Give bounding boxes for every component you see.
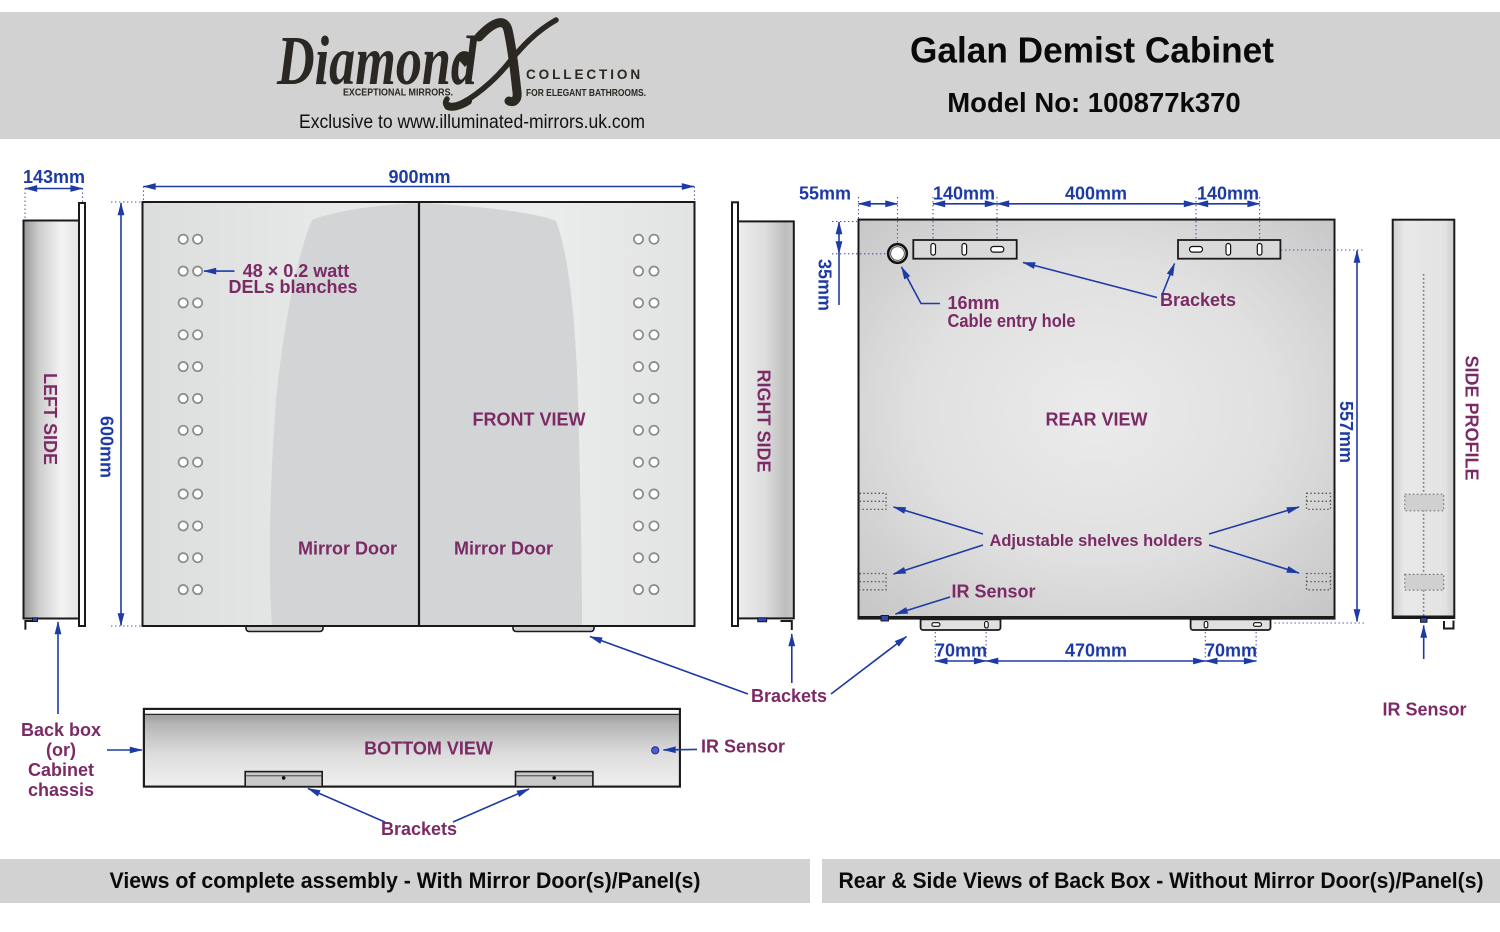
svg-text:FOR ELEGANT BATHROOMS.: FOR ELEGANT BATHROOMS.	[526, 87, 646, 99]
svg-text:Mirror Door: Mirror Door	[298, 539, 397, 559]
svg-text:EXCEPTIONAL MIRRORS.: EXCEPTIONAL MIRRORS.	[343, 87, 453, 99]
svg-text:Back box: Back box	[21, 720, 101, 740]
svg-text:LEFT SIDE: LEFT SIDE	[40, 373, 60, 465]
svg-text:900mm: 900mm	[388, 167, 450, 187]
svg-text:Brackets: Brackets	[1160, 290, 1236, 310]
svg-text:55mm: 55mm	[799, 184, 851, 204]
svg-text:Adjustable shelves holders: Adjustable shelves holders	[990, 531, 1203, 550]
svg-text:COLLECTION: COLLECTION	[526, 66, 643, 82]
svg-text:35mm: 35mm	[815, 259, 835, 311]
svg-text:SIDE PROFILE: SIDE PROFILE	[1462, 355, 1482, 480]
svg-text:Exclusive to www.illuminated-m: Exclusive to www.illuminated-mirrors.uk.…	[299, 111, 645, 133]
svg-text:REAR VIEW: REAR VIEW	[1045, 410, 1147, 430]
svg-text:IR Sensor: IR Sensor	[701, 737, 785, 757]
svg-text:IR Sensor: IR Sensor	[1382, 700, 1466, 720]
svg-text:Views of complete assembly - W: Views of complete assembly - With Mirror…	[110, 868, 701, 893]
svg-text:chassis: chassis	[28, 780, 94, 800]
svg-text:(or): (or)	[46, 740, 76, 760]
svg-text:Galan Demist Cabinet: Galan Demist Cabinet	[910, 30, 1274, 71]
svg-text:Rear & Side Views of Back Box: Rear & Side Views of Back Box - Without …	[839, 868, 1484, 893]
svg-text:143mm: 143mm	[23, 167, 85, 187]
svg-text:470mm: 470mm	[1065, 641, 1127, 661]
svg-text:Model No: 100877k370: Model No: 100877k370	[947, 87, 1240, 118]
svg-text:16mm: 16mm	[948, 293, 1000, 313]
svg-text:Cabinet: Cabinet	[28, 760, 94, 780]
svg-text:BOTTOM VIEW: BOTTOM VIEW	[364, 739, 493, 759]
svg-text:140mm: 140mm	[933, 184, 995, 204]
svg-text:Brackets: Brackets	[751, 686, 827, 706]
svg-text:70mm: 70mm	[935, 641, 987, 661]
svg-text:70mm: 70mm	[1205, 641, 1257, 661]
svg-text:Brackets: Brackets	[381, 819, 457, 839]
svg-text:600mm: 600mm	[97, 416, 117, 478]
svg-text:RIGHT SIDE: RIGHT SIDE	[754, 369, 774, 472]
svg-text:400mm: 400mm	[1065, 184, 1127, 204]
svg-text:557mm: 557mm	[1336, 401, 1356, 463]
svg-text:Cable entry hole: Cable entry hole	[948, 311, 1076, 331]
svg-text:140mm: 140mm	[1197, 184, 1259, 204]
svg-text:DELs blanches: DELs blanches	[228, 277, 357, 297]
svg-text:IR Sensor: IR Sensor	[951, 582, 1035, 602]
svg-text:FRONT VIEW: FRONT VIEW	[473, 410, 586, 430]
svg-text:Mirror Door: Mirror Door	[454, 539, 553, 559]
